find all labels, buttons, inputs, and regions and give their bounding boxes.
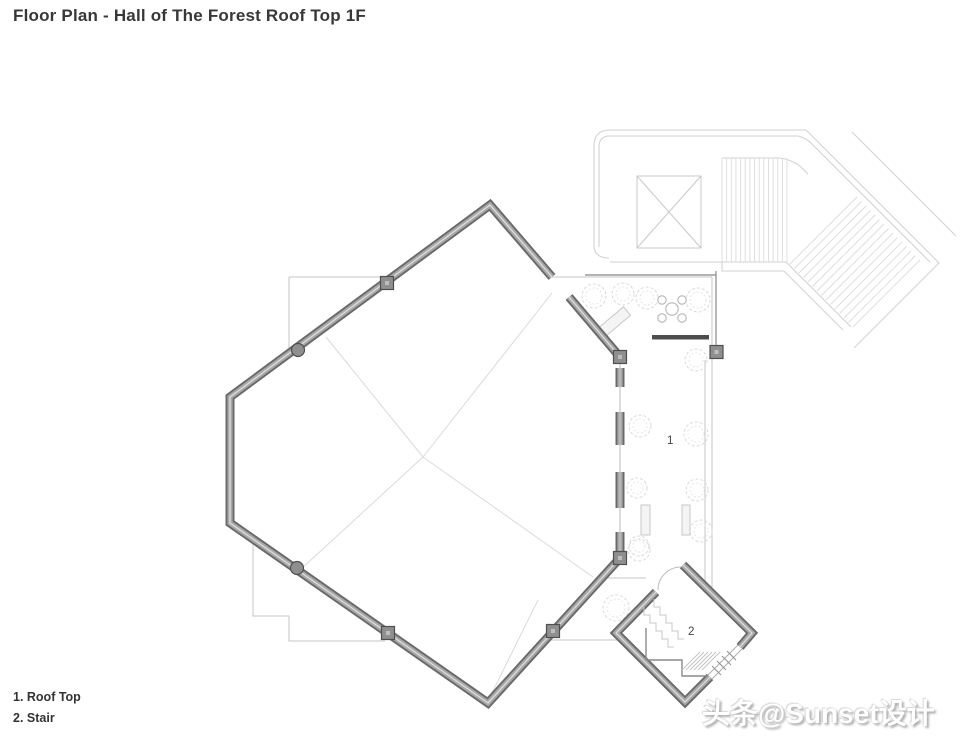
room-label-roof-top: 1 [667, 435, 673, 447]
table-and-chairs-icon [658, 296, 686, 322]
floor-plan-drawing: 1 2 [0, 0, 960, 741]
walkway-outline [594, 130, 956, 348]
straight-stair-treads [722, 158, 787, 262]
floor-plan-page: Floor Plan - Hall of The Forest Roof Top… [0, 0, 960, 741]
threshold-hatch-ticks [712, 651, 736, 675]
stair-enclosure-walls [616, 565, 752, 702]
legend: 1. Roof Top 2. Stair [13, 687, 81, 729]
watermark-text: 头条@Sunset设计 [702, 692, 935, 732]
room-label-stair: 2 [688, 626, 694, 638]
elevator-shaft [637, 176, 701, 248]
stair-door-swing-arc [658, 567, 681, 590]
counter-bench-dark [652, 335, 709, 340]
legend-item-stair: 2. Stair [13, 708, 81, 729]
diagonal-stair-treads [790, 197, 920, 327]
legend-item-roof-top: 1. Roof Top [13, 687, 81, 708]
